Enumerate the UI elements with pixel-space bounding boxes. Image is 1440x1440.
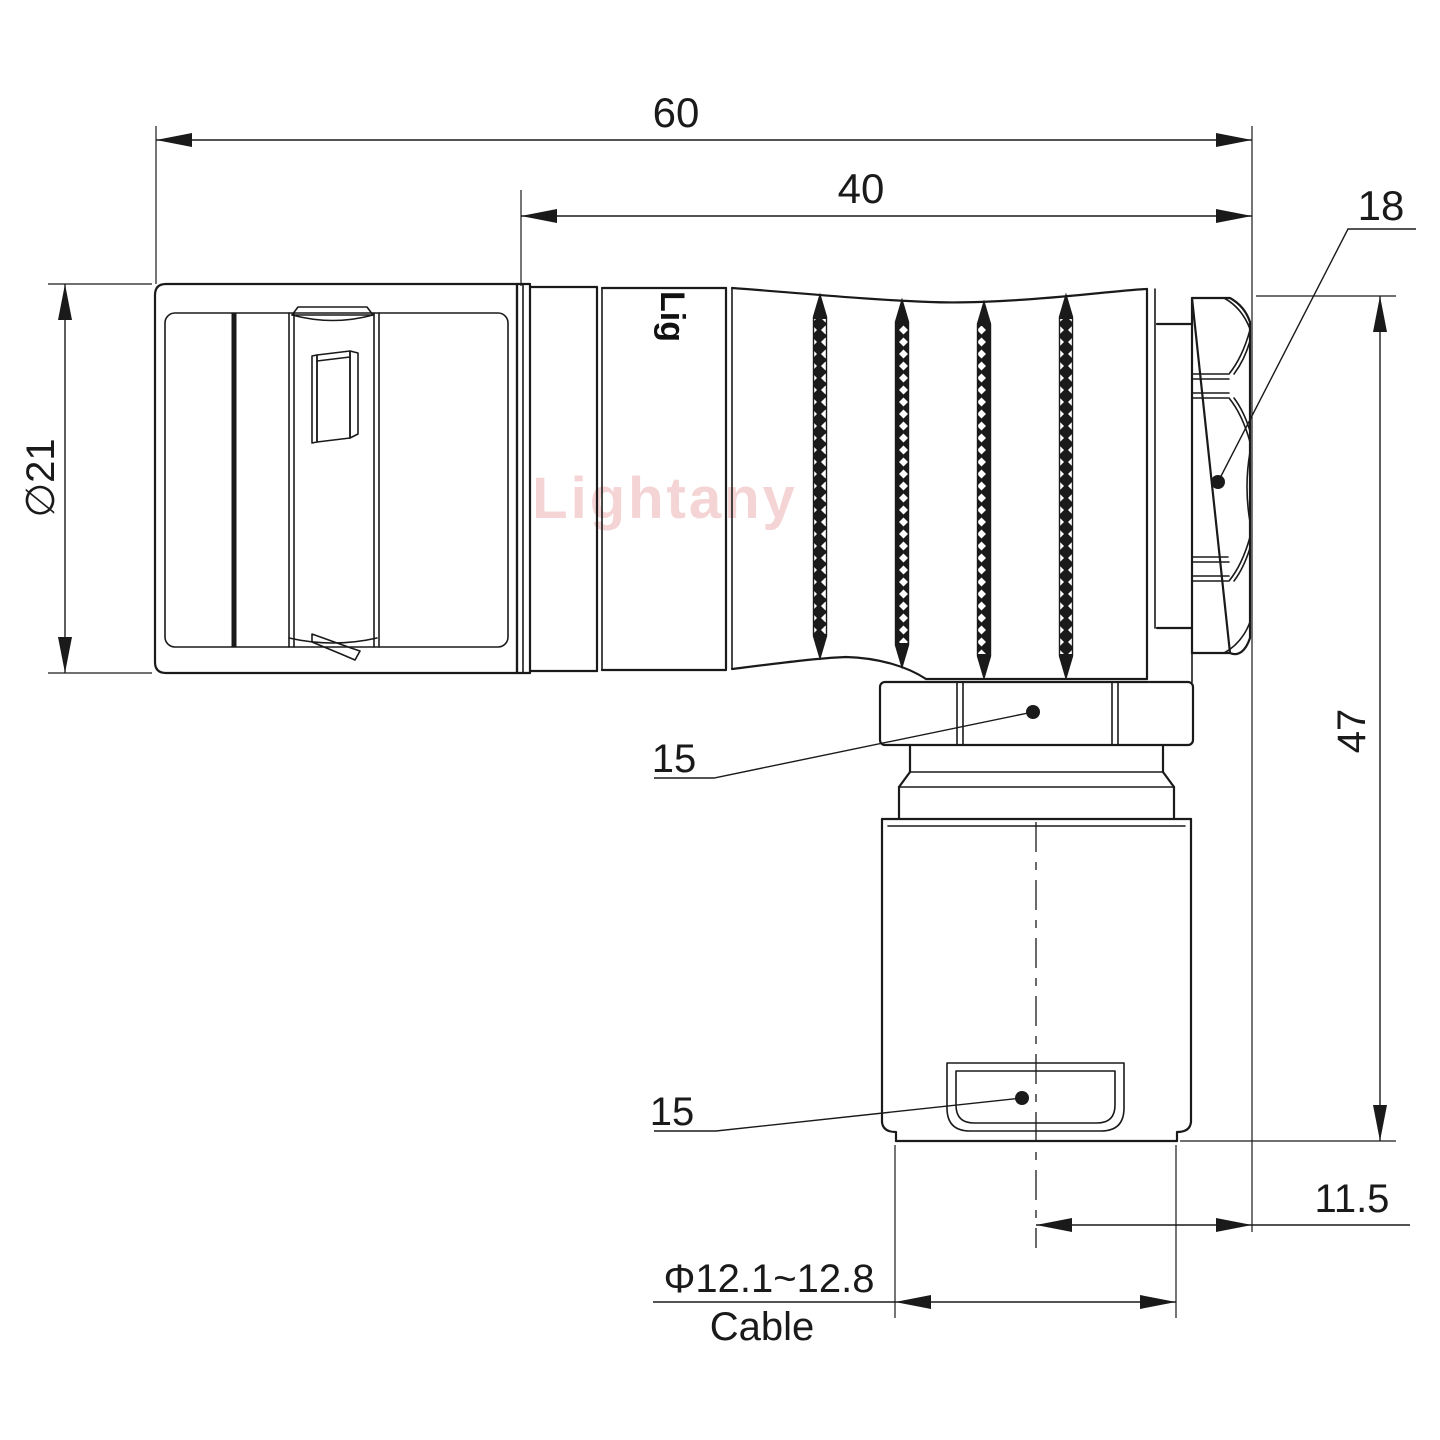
dim-coupling-hex-15-upper: 15 — [652, 705, 1040, 781]
knurl-strip-2 — [896, 300, 909, 667]
dim-label-cable-diameter: Φ12.1~12.8 — [664, 1257, 875, 1301]
knurl-strip-1 — [814, 295, 827, 658]
dim-front-diameter-21: ∅21 — [19, 284, 152, 673]
dim-rear-length-40: 40 — [521, 165, 1252, 286]
dim-label-40: 40 — [838, 165, 885, 212]
body-engraving-text: Lig — [653, 291, 691, 342]
dim-label-15-upper: 15 — [652, 737, 697, 781]
connector-drawing-svg: Lightany Lig — [0, 0, 1440, 1440]
watermark-text: Lightany — [532, 466, 798, 531]
connector-front-shell — [155, 284, 517, 673]
dim-label-dia21: ∅21 — [19, 438, 63, 517]
rear-step-ring — [1157, 324, 1192, 682]
knurl-strip-4 — [1060, 295, 1073, 678]
latch-key-window — [312, 351, 358, 443]
dim-label-60: 60 — [653, 89, 700, 136]
dim-rear-nut-18: 18 — [1211, 182, 1416, 489]
dim-label-cable: Cable — [710, 1305, 815, 1349]
cable-boot-vertical — [882, 745, 1191, 1248]
dim-label-11-5: 11.5 — [1315, 1177, 1390, 1221]
dim-cable-diameter: Φ12.1~12.8 Cable — [653, 1145, 1176, 1349]
dim-label-47: 47 — [1330, 709, 1374, 754]
dim-cable-clamp-15-lower: 15 — [650, 1090, 1029, 1134]
dim-cable-offset-11-5: 11.5 — [1036, 1177, 1410, 1232]
technical-drawing-page: Lightany Lig — [0, 0, 1440, 1440]
dim-label-18: 18 — [1358, 182, 1405, 229]
knurl-strip-3 — [978, 302, 991, 678]
dim-label-15-lower: 15 — [650, 1090, 695, 1134]
dim-total-length-60: 60 — [156, 89, 1252, 1232]
dim-height-47: 47 — [1180, 296, 1396, 1141]
